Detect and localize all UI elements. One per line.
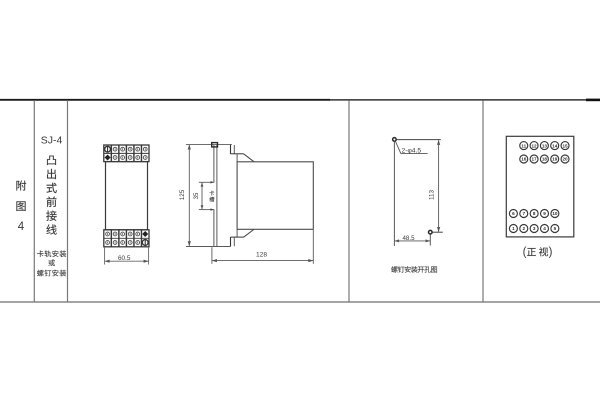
- svg-text:11: 11: [521, 143, 526, 148]
- svg-text:(: (: [523, 246, 527, 258]
- svg-text:3: 3: [533, 226, 536, 231]
- svg-text:5: 5: [554, 226, 557, 231]
- svg-text:10: 10: [552, 211, 558, 216]
- svg-text:8: 8: [533, 211, 536, 216]
- svg-text:6: 6: [512, 211, 515, 216]
- svg-text:16: 16: [521, 157, 527, 162]
- svg-text:12: 12: [532, 143, 538, 148]
- svg-text:2: 2: [522, 226, 525, 231]
- svg-text:19: 19: [552, 157, 558, 162]
- svg-text:9: 9: [543, 211, 546, 216]
- svg-text:20: 20: [562, 157, 568, 162]
- svg-text:4: 4: [543, 226, 546, 231]
- svg-text:SJ-4: SJ-4: [41, 135, 63, 147]
- svg-text:1: 1: [512, 226, 515, 231]
- svg-text:35: 35: [194, 192, 200, 199]
- svg-text:4: 4: [18, 221, 25, 233]
- svg-text:48.5: 48.5: [402, 235, 415, 242]
- svg-text:125: 125: [179, 189, 186, 200]
- svg-text:): ): [549, 246, 553, 258]
- svg-text:128: 128: [256, 252, 267, 259]
- svg-text:17: 17: [532, 157, 538, 162]
- svg-text:13: 13: [542, 143, 548, 148]
- svg-text:113: 113: [429, 189, 436, 200]
- svg-text:18: 18: [542, 157, 548, 162]
- svg-text:14: 14: [552, 143, 558, 148]
- svg-text:2-φ4.5: 2-φ4.5: [402, 147, 422, 154]
- svg-text:15: 15: [562, 143, 568, 148]
- svg-text:60.5: 60.5: [118, 255, 131, 262]
- svg-text:7: 7: [522, 211, 525, 216]
